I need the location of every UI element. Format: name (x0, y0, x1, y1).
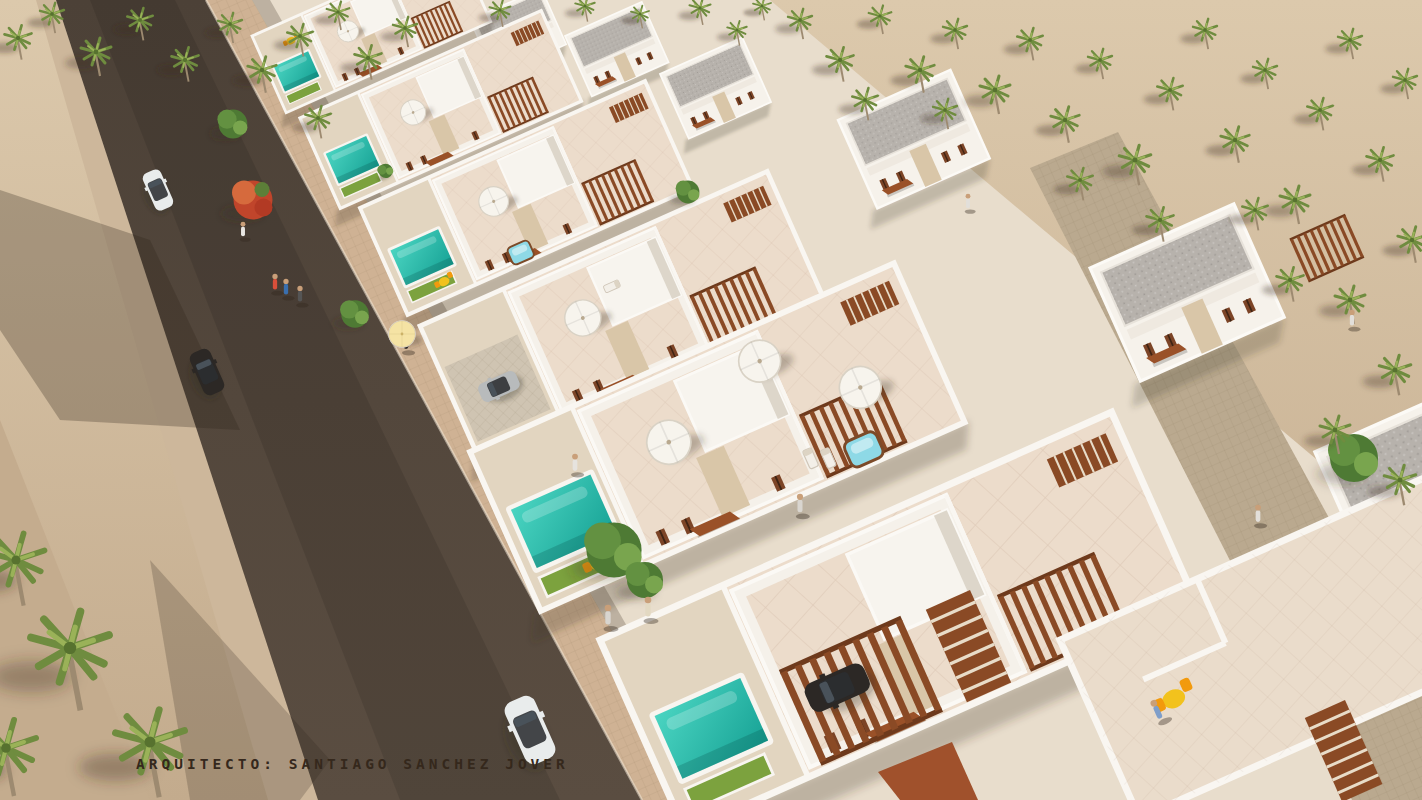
architect-credit: ARQUITECTO: SANTIAGO SANCHEZ JOVER (136, 756, 569, 772)
architectural-render: ARQUITECTO: SANTIAGO SANCHEZ JOVER (0, 0, 1422, 800)
parasol-tint (389, 321, 415, 347)
render-scene (0, 0, 1422, 800)
